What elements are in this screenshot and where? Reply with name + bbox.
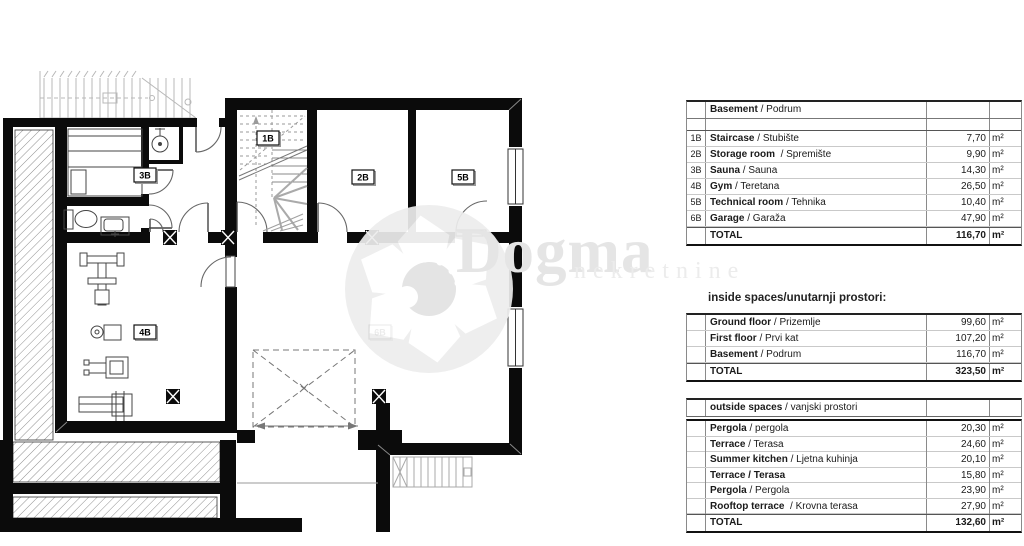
table-row: Terrace / Terasa 24,60 m² xyxy=(687,437,1021,453)
hatched-terrace-strips xyxy=(13,130,220,518)
sauna-benches xyxy=(68,129,142,196)
shower xyxy=(152,128,168,152)
table-row: 4B Gym / Teretana 26,50 m² xyxy=(687,179,1021,195)
window xyxy=(505,147,526,206)
table-row: 1B Staircase / Stubište 7,70 m² xyxy=(687,131,1021,147)
total-row: TOTAL 323,50 m² xyxy=(687,363,1021,380)
inside-spaces-table: Ground floor / Prizemlje 99,60 m² First … xyxy=(686,313,1022,382)
table-row: Basement / Podrum 116,70 m² xyxy=(687,347,1021,363)
outside-spaces-table: Pergola / pergola 20,30 m² Terrace / Ter… xyxy=(686,419,1022,533)
room-label-1b: 1B xyxy=(257,131,281,147)
table-row: 6B Garage / Garaža 47,90 m² xyxy=(687,211,1021,227)
svg-text:5B: 5B xyxy=(457,173,469,183)
basement-area-table: Basement / Podrum 1B Staircase / Stubišt… xyxy=(686,100,1022,246)
table-row: 5B Technical room / Tehnika 10,40 m² xyxy=(687,195,1021,211)
table-row: 2B Storage room / Spremište 9,90 m² xyxy=(687,147,1021,163)
room-label-2b: 2B xyxy=(352,170,376,186)
spacer-row xyxy=(687,119,1021,131)
room-label-4b: 4B xyxy=(134,325,158,341)
svg-text:3B: 3B xyxy=(139,171,151,181)
garage-door-opening xyxy=(255,423,358,430)
room-label-3b: 3B xyxy=(134,168,158,184)
table-row: Rooftop terrace / Krovna terasa 27,90 m² xyxy=(687,499,1021,515)
table-row: 3B Sauna / Sauna 14,30 m² xyxy=(687,163,1021,179)
table-row: Pergola / pergola 20,30 m² xyxy=(687,421,1021,437)
table-row: Ground floor / Prizemlje 99,60 m² xyxy=(687,315,1021,331)
svg-text:4B: 4B xyxy=(139,328,151,338)
staircase-1b xyxy=(239,110,307,231)
watermark-sub: nekretnine xyxy=(574,258,745,284)
svg-text:1B: 1B xyxy=(262,134,274,144)
svg-text:2B: 2B xyxy=(357,173,369,183)
total-row: TOTAL 116,70 m² xyxy=(687,227,1021,244)
table-row: Terrace / Terasa 15,80 m² xyxy=(687,468,1021,484)
skylight-dashed-square xyxy=(253,350,355,427)
outside-spaces-header: outside spaces / vanjski prostori xyxy=(686,398,1022,417)
inside-spaces-title: inside spaces/unutarnji prostori: xyxy=(708,292,886,304)
total-row: TOTAL 132,60 m² xyxy=(687,514,1021,531)
table-row: Summer kitchen / Ljetna kuhinja 20,10 m² xyxy=(687,452,1021,468)
room-label-5b: 5B xyxy=(452,170,476,186)
exterior-stairs-top xyxy=(40,71,196,118)
toilet xyxy=(64,210,97,229)
table-row: Pergola / Pergola 23,90 m² xyxy=(687,483,1021,499)
exterior-stairs-bottom xyxy=(237,457,472,487)
table-header: Basement / Podrum xyxy=(687,102,1021,119)
gym-equipment xyxy=(79,253,132,421)
table-row: First floor / Prvi kat 107,20 m² xyxy=(687,331,1021,347)
